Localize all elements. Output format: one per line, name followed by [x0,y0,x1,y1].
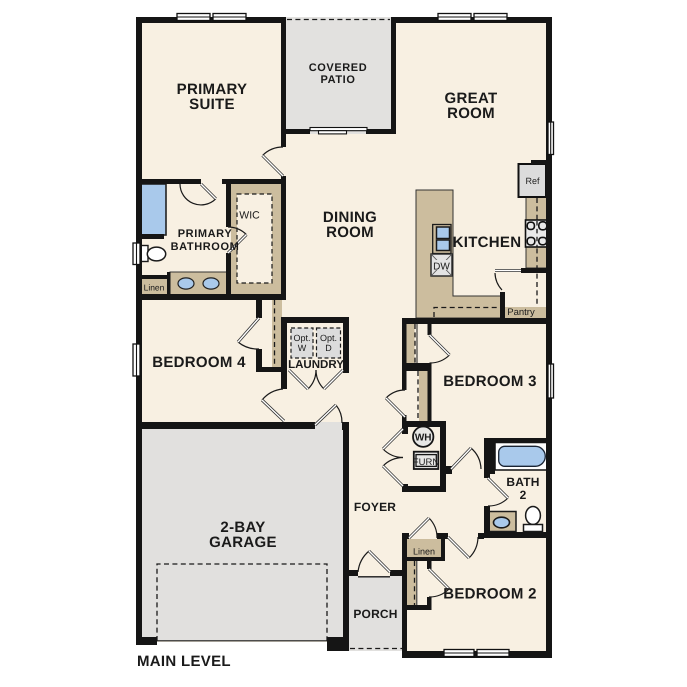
svg-text:Opt.: Opt. [320,333,337,343]
svg-text:ROOM: ROOM [447,105,495,122]
svg-text:ROOM: ROOM [326,224,374,241]
svg-text:WH: WH [415,433,432,444]
svg-text:MAIN LEVEL: MAIN LEVEL [137,653,231,670]
svg-text:LAUNDRY: LAUNDRY [288,359,344,371]
svg-text:PRIMARY: PRIMARY [178,228,233,240]
svg-text:Pantry: Pantry [507,307,535,318]
svg-text:GARAGE: GARAGE [209,534,277,551]
svg-text:FURN: FURN [413,457,440,468]
svg-text:WIC: WIC [239,210,260,222]
svg-text:D: D [325,343,332,353]
svg-text:Linen: Linen [144,283,165,293]
svg-text:W: W [298,343,307,353]
svg-text:Opt.: Opt. [293,333,310,343]
svg-text:DW: DW [433,262,450,273]
svg-text:Ref: Ref [525,176,540,186]
svg-text:BEDROOM 3: BEDROOM 3 [443,373,537,390]
svg-text:KITCHEN: KITCHEN [453,234,522,251]
svg-text:Linen: Linen [413,547,435,557]
svg-text:PORCH: PORCH [353,607,397,621]
svg-text:FOYER: FOYER [354,500,396,514]
svg-text:BATH: BATH [506,475,539,489]
svg-text:BATHROOM: BATHROOM [171,241,240,253]
svg-text:COVERED: COVERED [309,62,368,74]
svg-text:2: 2 [520,488,527,502]
svg-text:PATIO: PATIO [321,74,356,86]
svg-text:SUITE: SUITE [189,96,235,113]
svg-text:BEDROOM 4: BEDROOM 4 [152,354,246,371]
svg-text:BEDROOM 2: BEDROOM 2 [443,586,537,603]
